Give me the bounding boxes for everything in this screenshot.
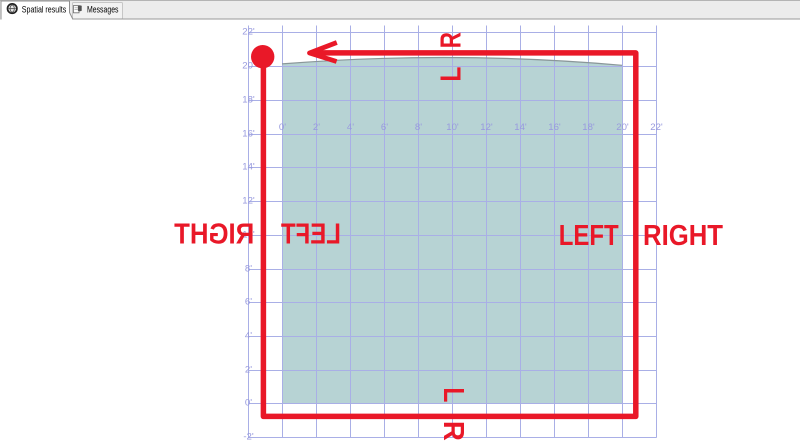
svg-text:16': 16': [242, 129, 255, 140]
svg-text:4': 4': [347, 122, 354, 133]
svg-text:2': 2': [313, 122, 320, 133]
svg-text:R: R: [437, 421, 469, 441]
svg-text:RIGHT: RIGHT: [643, 220, 723, 252]
svg-text:Messages: Messages: [87, 5, 119, 15]
svg-text:12': 12': [480, 122, 493, 133]
svg-text:0': 0': [279, 122, 286, 133]
svg-text:8': 8': [245, 264, 252, 275]
svg-text:4': 4': [245, 331, 252, 342]
svg-text:14': 14': [242, 162, 255, 173]
svg-text:10': 10': [446, 122, 459, 133]
svg-text:RIGHT: RIGHT: [174, 219, 254, 251]
svg-text:6': 6': [381, 122, 388, 133]
svg-text:6': 6': [245, 297, 252, 308]
svg-text:8': 8': [415, 122, 422, 133]
svg-text:12': 12': [242, 196, 255, 207]
svg-text:L: L: [437, 387, 469, 402]
svg-text:0': 0': [245, 398, 252, 409]
svg-text:L: L: [435, 67, 467, 82]
svg-text:LEFT: LEFT: [281, 219, 341, 251]
svg-text:22': 22': [242, 27, 255, 38]
svg-text:16': 16': [548, 122, 561, 133]
svg-text:Spatial results: Spatial results: [22, 5, 67, 15]
svg-text:-2': -2': [243, 432, 254, 443]
svg-text:14': 14': [514, 122, 527, 133]
svg-text:18': 18': [582, 122, 595, 133]
svg-text:R: R: [435, 32, 467, 48]
svg-text:LEFT: LEFT: [559, 220, 619, 252]
svg-text:20': 20': [616, 122, 629, 133]
svg-text:18': 18': [242, 95, 255, 106]
svg-text:22': 22': [650, 122, 663, 133]
svg-text:2': 2': [245, 365, 252, 376]
